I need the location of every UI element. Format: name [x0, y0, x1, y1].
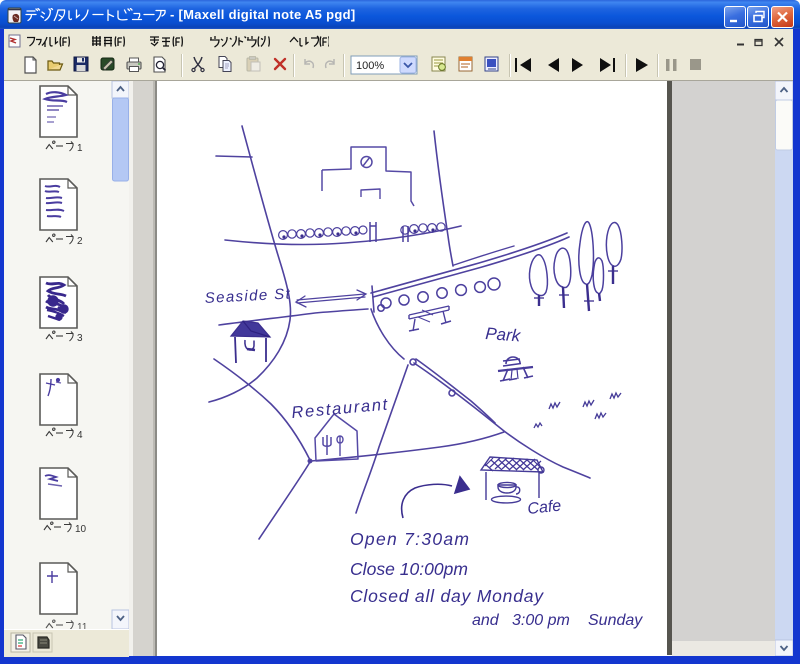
- svg-text:100%: 100%: [356, 60, 384, 72]
- svg-text:Closed all day Monday: Closed all day Monday: [350, 586, 544, 606]
- svg-text:and3:00 pmSunday: and3:00 pmSunday: [472, 612, 643, 629]
- svg-text:11: 11: [77, 622, 88, 629]
- svg-text:2: 2: [77, 236, 83, 247]
- svg-text:1: 1: [77, 143, 83, 154]
- svg-text:Cafe: Cafe: [527, 498, 562, 518]
- svg-text:Seaside St: Seaside St: [204, 286, 291, 307]
- svg-text:Open 7:30am: Open 7:30am: [350, 529, 469, 549]
- svg-text:Close 10:00pm: Close 10:00pm: [350, 559, 468, 579]
- svg-text:10: 10: [75, 524, 87, 535]
- svg-text:3: 3: [77, 333, 83, 344]
- svg-text:4: 4: [77, 430, 83, 441]
- svg-text:Park: Park: [485, 324, 523, 345]
